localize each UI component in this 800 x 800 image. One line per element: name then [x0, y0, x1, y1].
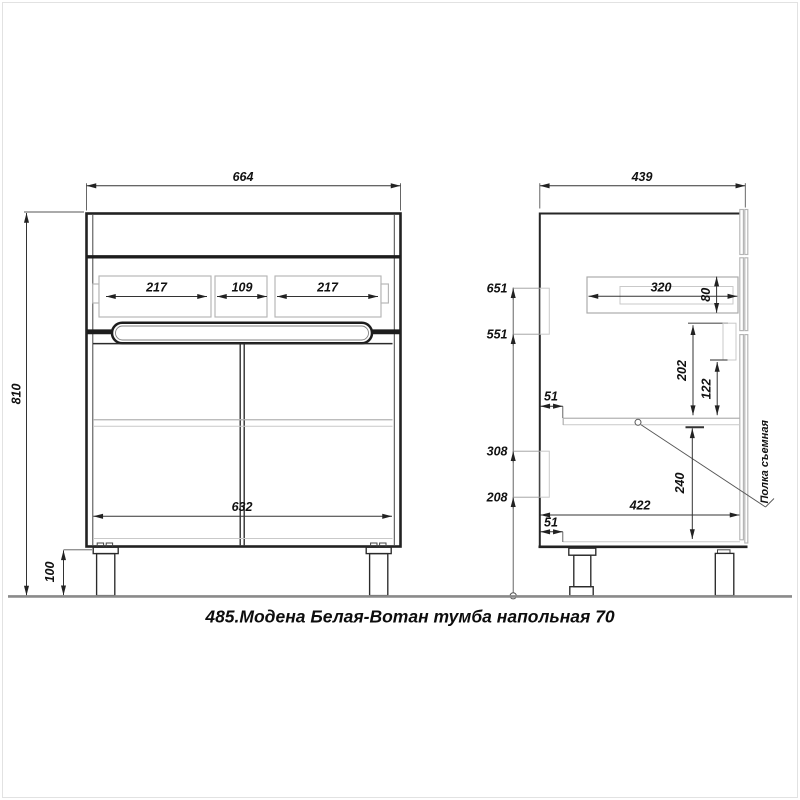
hinge-plate-lower	[540, 451, 549, 497]
front-right-leg-cap	[366, 547, 391, 553]
side-notch-dims: 202 122	[675, 323, 736, 415]
dim-label-drawer-217-right: 217	[316, 281, 339, 295]
side-view: 439	[486, 170, 774, 599]
drawing-title: 485.Модена Белая-Вотан тумба напольная 7…	[204, 607, 615, 627]
side-front-leg	[574, 555, 591, 587]
dim-label-320: 320	[651, 280, 672, 294]
dim-label-51-bottom: 51	[544, 515, 558, 529]
side-drawer-box: 320 80	[587, 277, 738, 313]
dim-label-51-top: 51	[544, 390, 558, 404]
dim-front-overall-width: 664	[87, 170, 401, 211]
dim-label-810: 810	[10, 384, 24, 405]
front-drawer-band: 217 109 217	[93, 276, 389, 317]
front-doors: 632	[93, 344, 393, 546]
technical-drawing: 664 810 100	[0, 0, 800, 800]
front-right-leg	[370, 554, 388, 596]
dim-label-651: 651	[487, 282, 508, 296]
dim-label-664: 664	[233, 170, 254, 184]
dim-side-depth: 439	[540, 170, 746, 209]
dim-label-100: 100	[43, 562, 57, 583]
dim-label-122: 122	[699, 379, 713, 400]
front-left-leg	[97, 554, 115, 596]
dim-front-overall-height: 810	[10, 212, 85, 596]
front-cabinet-carcass	[87, 214, 401, 547]
dim-label-632: 632	[232, 500, 253, 514]
dim-label-439: 439	[631, 170, 653, 184]
front-left-leg-cap	[93, 547, 118, 553]
front-handle-rail	[87, 323, 400, 343]
dim-label-308: 308	[487, 445, 508, 459]
dim-label-drawer-217-left: 217	[145, 281, 168, 295]
dim-label-240: 240	[673, 473, 687, 495]
dim-label-drawer-109: 109	[232, 281, 253, 295]
shelf-leader-node	[635, 419, 641, 425]
dim-label-208: 208	[486, 491, 508, 505]
front-legs	[93, 543, 391, 596]
front-view: 664 810 100	[10, 170, 401, 596]
dim-label-422: 422	[629, 498, 651, 512]
front-cabinet-outline	[87, 214, 401, 547]
side-front-leg-foot	[570, 587, 593, 596]
side-cabinet-carcass	[539, 210, 748, 547]
drawing-sheet: 664 810 100	[0, 0, 800, 800]
shelf-note-label: Полка съемная	[759, 420, 771, 504]
side-front-leg-cap	[569, 548, 596, 555]
side-legs	[569, 548, 734, 596]
dim-label-80: 80	[699, 288, 713, 302]
dim-front-leg-height: 100	[43, 550, 92, 596]
side-rear-leg	[715, 553, 734, 595]
dim-label-202: 202	[675, 360, 689, 382]
dim-label-551: 551	[487, 328, 508, 342]
side-offset-dims: 51 51	[540, 390, 563, 542]
side-lower-dims: 240 422	[540, 427, 739, 539]
hinge-plate-upper	[540, 288, 549, 334]
